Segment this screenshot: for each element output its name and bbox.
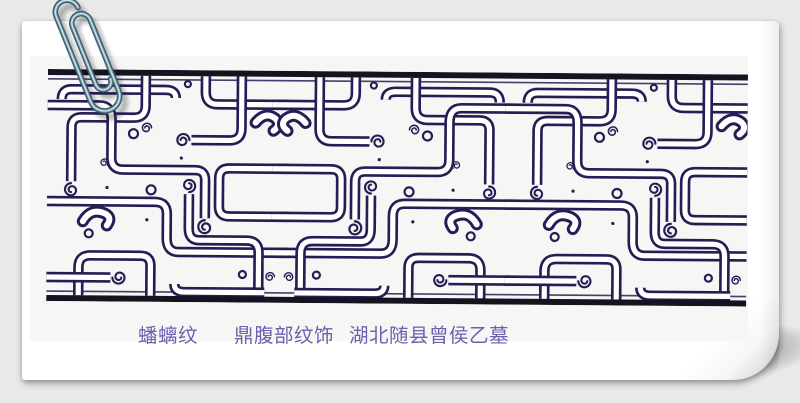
caption-provenance: 湖北随县曾侯乙墓 (349, 324, 509, 347)
pattern-tile-3 (504, 79, 748, 301)
caption-title: 蟠螭纹 (138, 324, 198, 347)
paperclip-icon (24, 0, 204, 154)
desk-background: 蟠螭纹鼎腹部纹饰湖北随县曾侯乙墓 (0, 0, 800, 403)
pattern-tile-2 (271, 77, 522, 299)
caption: 蟠螭纹鼎腹部纹饰湖北随县曾侯乙墓 (138, 319, 509, 348)
caption-subject: 鼎腹部纹饰 (234, 324, 334, 347)
